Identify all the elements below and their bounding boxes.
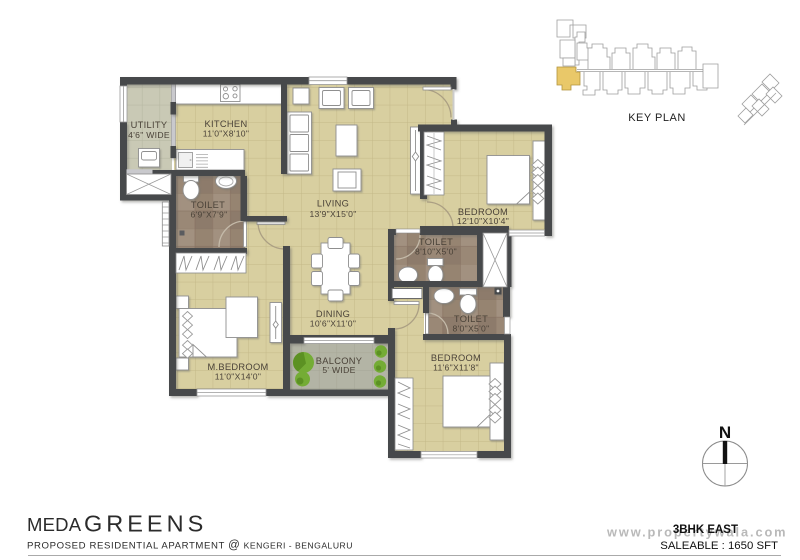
svg-text:10'6"X11'0": 10'6"X11'0"	[310, 319, 356, 329]
svg-text:PROPOSED RESIDENTIAL APARTMENT: PROPOSED RESIDENTIAL APARTMENT @ KENGERI…	[27, 540, 353, 552]
svg-text:13'9"X15'0": 13'9"X15'0"	[309, 209, 356, 219]
svg-text:12'10"X10'4": 12'10"X10'4"	[457, 216, 509, 226]
svg-text:8'10"X5'0": 8'10"X5'0"	[415, 247, 457, 257]
svg-text:TOILET: TOILET	[419, 237, 453, 247]
svg-text:BEDROOM: BEDROOM	[431, 353, 481, 363]
svg-text:11'0"X14'0": 11'0"X14'0"	[215, 372, 261, 382]
svg-text:KEY PLAN: KEY PLAN	[628, 112, 686, 124]
svg-text:11'0"X8'10": 11'0"X8'10"	[203, 129, 249, 139]
svg-text:SALEABLE : 1650 SFT: SALEABLE : 1650 SFT	[660, 540, 778, 552]
svg-text:4'6" WIDE: 4'6" WIDE	[128, 130, 170, 140]
svg-text:GREENS: GREENS	[84, 511, 207, 537]
svg-text:DINING: DINING	[316, 309, 350, 319]
svg-text:5' WIDE: 5' WIDE	[322, 365, 355, 375]
svg-text:11'6"X11'8": 11'6"X11'8"	[433, 363, 479, 373]
svg-text:M.BEDROOM: M.BEDROOM	[207, 362, 268, 372]
svg-text:MEDA: MEDA	[27, 514, 82, 535]
svg-text:6'9"X7'9": 6'9"X7'9"	[191, 210, 228, 220]
svg-text:8'0"X5'0": 8'0"X5'0"	[453, 324, 490, 334]
svg-text:TOILET: TOILET	[191, 200, 225, 210]
svg-text:TOILET: TOILET	[454, 314, 488, 324]
svg-text:N: N	[719, 423, 731, 442]
svg-text:LIVING: LIVING	[317, 199, 349, 209]
svg-text:KITCHEN: KITCHEN	[205, 119, 248, 129]
svg-text:UTILITY: UTILITY	[131, 120, 168, 130]
svg-text:3BHK EAST: 3BHK EAST	[673, 524, 738, 536]
